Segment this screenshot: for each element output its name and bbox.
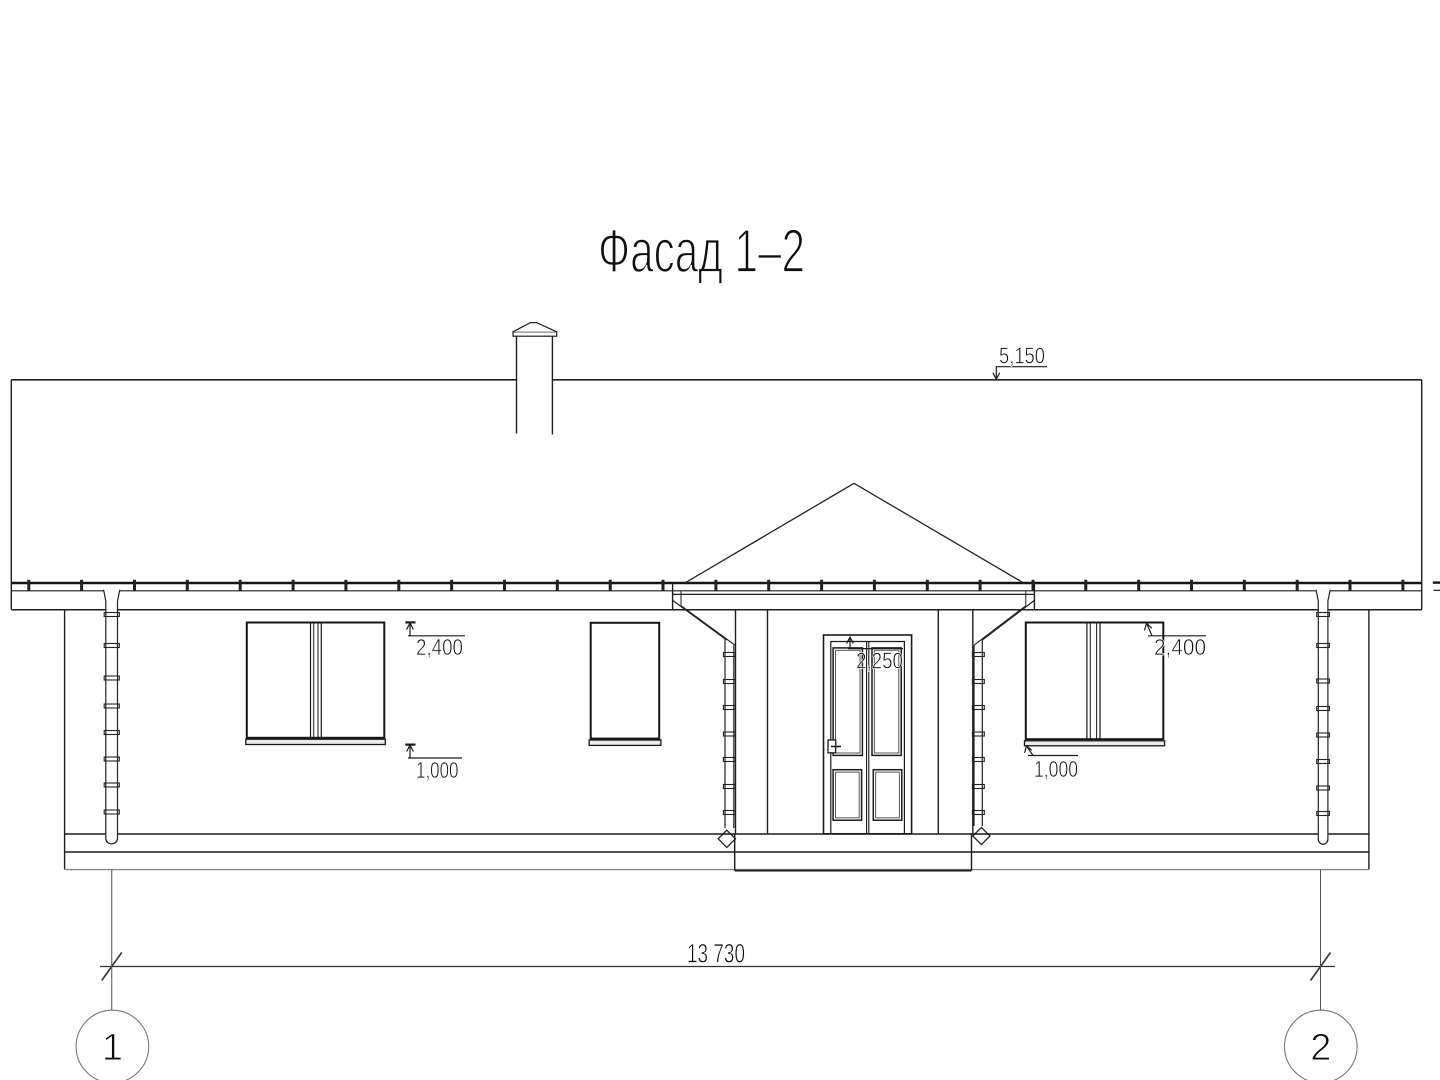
svg-text:2,400: 2,400 <box>416 634 463 660</box>
svg-text:13 730: 13 730 <box>687 939 745 969</box>
svg-text:2: 2 <box>1310 1027 1331 1069</box>
svg-text:1,000: 1,000 <box>1034 756 1078 782</box>
svg-text:2,250: 2,250 <box>856 648 903 674</box>
svg-text:1: 1 <box>102 1027 123 1069</box>
svg-text:2,400: 2,400 <box>1154 634 1206 660</box>
svg-text:Фасад 1–2: Фасад 1–2 <box>598 217 805 285</box>
svg-text:1,000: 1,000 <box>416 757 459 783</box>
svg-text:5,150: 5,150 <box>999 343 1045 369</box>
